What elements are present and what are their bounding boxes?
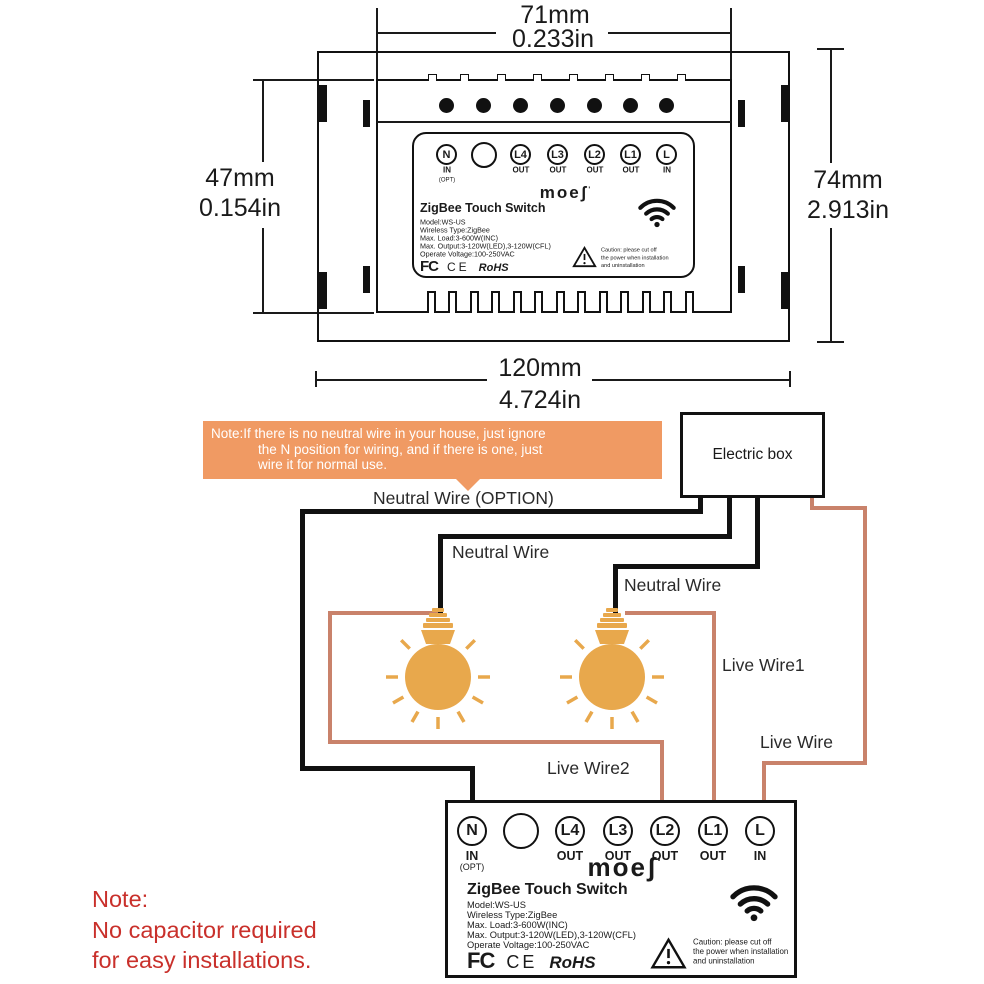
bottom-spec-list: Model:WS-US Wireless Type:ZigBee Max. Lo… bbox=[467, 901, 636, 951]
bottom-wifi-icon bbox=[728, 882, 780, 922]
caution-line: Caution: please cut off bbox=[601, 246, 685, 254]
terminal-l4-sub: OUT bbox=[503, 166, 538, 175]
terminal-l3: L3 bbox=[547, 144, 568, 165]
bottom-terminal-n-sub: IN bbox=[442, 849, 502, 863]
bottom-brand-mark: ' bbox=[658, 856, 663, 869]
bottom-caution-text: Caution: please cut off the power when i… bbox=[693, 938, 797, 967]
caution-line: and uninstallation bbox=[693, 957, 797, 967]
wiring-diagram-page: 71mm 0.233in 47mm 0.154in 74mm 2.913in 1… bbox=[0, 0, 984, 984]
dim-right-in: 2.913in bbox=[798, 196, 898, 225]
label-live-wire: Live Wire bbox=[760, 732, 833, 753]
caution-icon bbox=[572, 246, 597, 268]
note-line: the N position for wiring, and if there … bbox=[203, 442, 662, 458]
caution-line: the power when installation bbox=[601, 254, 685, 262]
caution-text: Caution: please cut off the power when i… bbox=[601, 246, 685, 269]
screw-dot bbox=[587, 98, 602, 113]
bottom-cert-marks: FC CE RoHS bbox=[467, 948, 596, 974]
edge-notch bbox=[677, 74, 686, 81]
rohs-mark: RoHS bbox=[479, 262, 509, 274]
heat-slot bbox=[534, 291, 543, 313]
cert-marks: FC CE RoHS bbox=[420, 258, 509, 275]
spec-line: Model:WS-US bbox=[420, 218, 660, 226]
dim-left-mm: 47mm bbox=[185, 164, 295, 193]
heat-slot bbox=[577, 291, 586, 313]
bottom-terminal-l4: L4 bbox=[555, 816, 585, 846]
label-live-wire-1: Live Wire1 bbox=[722, 655, 805, 676]
terminal-l: L bbox=[656, 144, 677, 165]
terminal-l-sub: IN bbox=[649, 166, 684, 175]
mount-tab bbox=[319, 85, 327, 122]
caution-line: Caution: please cut off bbox=[693, 938, 797, 948]
fcc-mark: FC bbox=[420, 258, 438, 275]
product-title: ZigBee Touch Switch bbox=[420, 201, 545, 215]
screw-dot bbox=[550, 98, 565, 113]
heat-slot bbox=[556, 291, 565, 313]
terminal-n: N bbox=[436, 144, 457, 165]
dim-bottom-tick-right bbox=[789, 371, 791, 387]
screw-dot bbox=[623, 98, 638, 113]
bottom-terminal-blank bbox=[503, 813, 539, 849]
clip-tab bbox=[363, 266, 370, 293]
edge-notch bbox=[460, 74, 469, 81]
heat-slot bbox=[620, 291, 629, 313]
bottom-product-title: ZigBee Touch Switch bbox=[467, 881, 628, 899]
ce-mark: CE bbox=[506, 952, 537, 973]
edge-notch bbox=[605, 74, 614, 81]
terminal-l2: L2 bbox=[584, 144, 605, 165]
bottom-brand-logo: moeʃ' bbox=[560, 852, 690, 883]
terminal-n-letter: N bbox=[443, 149, 451, 161]
terminal-strip-line bbox=[377, 121, 731, 123]
mount-tab bbox=[319, 272, 327, 309]
bottom-terminal-n-opt: (OPT) bbox=[442, 862, 502, 872]
brand-logo: moeʃ' bbox=[521, 183, 611, 203]
dim-top-line-left bbox=[376, 32, 496, 34]
bottom-terminal-l3: L3 bbox=[603, 816, 633, 846]
heat-slot bbox=[491, 291, 500, 313]
brand-text: moeʃ bbox=[540, 183, 589, 202]
dim-bottom-line-right bbox=[592, 379, 790, 381]
label-neutral-wire-option: Neutral Wire (OPTION) bbox=[373, 488, 554, 509]
bottom-terminal-l1: L1 bbox=[698, 816, 728, 846]
terminal-l-letter: L bbox=[663, 149, 670, 161]
heat-slot bbox=[663, 291, 672, 313]
dim-bottom-in: 4.724in bbox=[465, 386, 615, 415]
clip-tab bbox=[363, 100, 370, 127]
label-live-wire-2: Live Wire2 bbox=[547, 758, 630, 779]
dim-bottom-line-left bbox=[315, 379, 487, 381]
mount-tab bbox=[781, 272, 789, 309]
terminal-n-opt: (OPT) bbox=[431, 176, 464, 183]
screw-dot bbox=[513, 98, 528, 113]
dim-left-line-bottom bbox=[262, 228, 264, 313]
bottom-terminal-l1-letter: L1 bbox=[704, 822, 723, 840]
bottom-caution-icon bbox=[650, 937, 687, 970]
bottom-terminal-l4-letter: L4 bbox=[561, 822, 580, 840]
rohs-mark: RoHS bbox=[549, 953, 595, 973]
bottom-brand-text: moeʃ bbox=[588, 852, 658, 882]
bulb-2 bbox=[557, 598, 667, 732]
dim-left-line-top bbox=[262, 80, 264, 162]
bottom-terminal-l3-letter: L3 bbox=[609, 822, 628, 840]
terminal-l4-letter: L4 bbox=[514, 149, 527, 161]
bottom-note: Note: No capacitor required for easy ins… bbox=[92, 884, 317, 976]
heat-slot bbox=[427, 291, 436, 313]
bottom-terminal-l: L bbox=[745, 816, 775, 846]
dim-top-line-right bbox=[608, 32, 731, 34]
heat-slot bbox=[599, 291, 608, 313]
electric-box-label: Electric box bbox=[712, 446, 792, 464]
dim-bottom-tick-left bbox=[315, 371, 317, 387]
edge-notch bbox=[641, 74, 650, 81]
edge-notch bbox=[428, 74, 437, 81]
brand-mark: ' bbox=[588, 184, 592, 193]
heat-slot bbox=[470, 291, 479, 313]
heat-slot bbox=[448, 291, 457, 313]
spec-line: Max. Load:3-600W(INC) bbox=[420, 234, 660, 242]
bottom-terminal-n-letter: N bbox=[466, 822, 478, 840]
caution-line: the power when installation bbox=[693, 948, 797, 958]
screw-dot bbox=[439, 98, 454, 113]
clip-tab bbox=[738, 266, 745, 293]
bottom-terminal-l2-letter: L2 bbox=[656, 822, 675, 840]
label-neutral-wire-2: Neutral Wire bbox=[624, 575, 721, 596]
heat-slot bbox=[642, 291, 651, 313]
terminal-l1-sub: OUT bbox=[613, 166, 648, 175]
label-neutral-wire-1: Neutral Wire bbox=[452, 542, 549, 563]
mount-tab bbox=[781, 85, 789, 122]
dim-left-in: 0.154in bbox=[185, 194, 295, 223]
ce-mark: CE bbox=[447, 260, 470, 274]
bulb-1 bbox=[383, 598, 493, 732]
fcc-mark: FC bbox=[467, 948, 494, 974]
bottom-terminal-l-letter: L bbox=[755, 822, 765, 840]
terminal-blank bbox=[471, 142, 497, 168]
wifi-icon bbox=[637, 196, 677, 228]
dim-right-line-top bbox=[830, 50, 832, 163]
spec-line: Wireless Type:ZigBee bbox=[420, 226, 660, 234]
terminal-l2-sub: OUT bbox=[577, 166, 612, 175]
terminal-l2-letter: L2 bbox=[588, 149, 601, 161]
terminal-l3-sub: OUT bbox=[540, 166, 575, 175]
bottom-terminal-l2: L2 bbox=[650, 816, 680, 846]
dim-top-in: 0.233in bbox=[478, 25, 628, 54]
terminal-l3-letter: L3 bbox=[551, 149, 564, 161]
terminal-n-sub: IN bbox=[429, 166, 464, 175]
dim-right-tick-top bbox=[817, 48, 844, 50]
bottom-note-line: No capacitor required bbox=[92, 915, 317, 946]
bottom-terminal-n: N bbox=[457, 816, 487, 846]
screw-dot bbox=[659, 98, 674, 113]
bottom-note-line: for easy installations. bbox=[92, 945, 317, 976]
edge-notch bbox=[533, 74, 542, 81]
edge-notch bbox=[497, 74, 506, 81]
note-line: wire it for normal use. bbox=[203, 457, 662, 473]
terminal-l4: L4 bbox=[510, 144, 531, 165]
bottom-terminal-l-sub: IN bbox=[730, 849, 790, 863]
note-callout: Note:If there is no neutral wire in your… bbox=[203, 421, 662, 479]
dim-right-tick-bottom bbox=[817, 341, 844, 343]
electric-box: Electric box bbox=[680, 412, 825, 498]
caution-line: and uninstallation bbox=[601, 261, 685, 269]
heat-slot bbox=[685, 291, 694, 313]
screw-dot bbox=[476, 98, 491, 113]
dim-right-mm: 74mm bbox=[798, 166, 898, 195]
edge-notch bbox=[569, 74, 578, 81]
heat-slot bbox=[513, 291, 522, 313]
dim-right-line-bottom bbox=[830, 228, 832, 342]
bottom-note-line: Note: bbox=[92, 884, 317, 915]
note-line: Note:If there is no neutral wire in your… bbox=[203, 426, 662, 442]
clip-tab bbox=[738, 100, 745, 127]
terminal-l1-letter: L1 bbox=[624, 149, 637, 161]
terminal-l1: L1 bbox=[620, 144, 641, 165]
